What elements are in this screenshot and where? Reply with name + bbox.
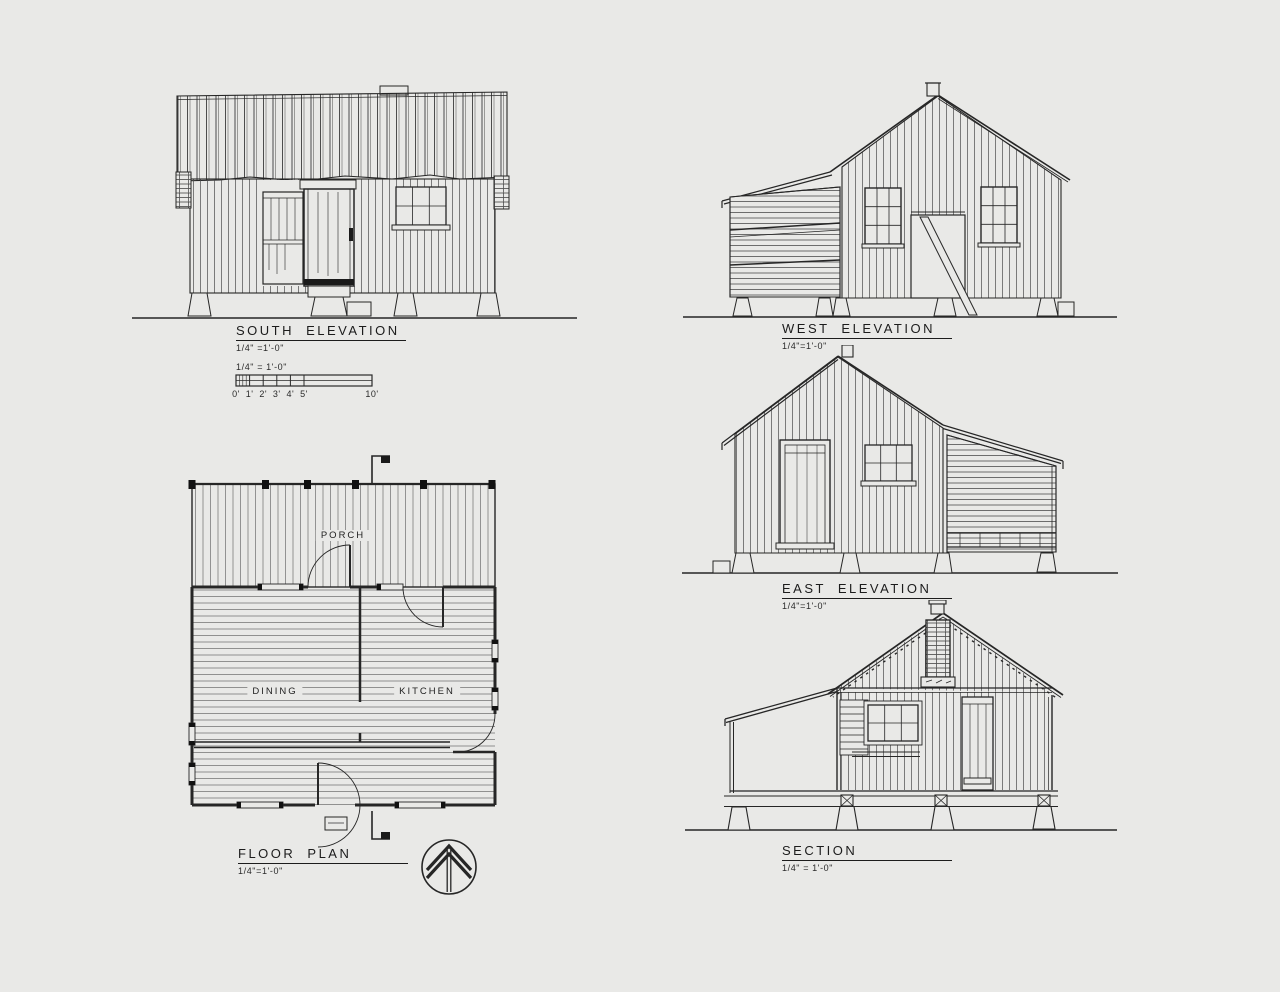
floor-plan-svg — [150, 440, 550, 880]
south-elevation-label: SOUTH ELEVATION 1/4" =1'-0" — [236, 322, 406, 353]
south-elevation-scale: 1/4" =1'-0" — [236, 343, 406, 353]
section-cut-flag-top — [372, 456, 390, 484]
west-elevation-drawing — [680, 80, 1120, 330]
porch-post — [304, 480, 311, 489]
window-nine-pane-left — [862, 188, 904, 248]
scale-tick-5: 5' — [300, 389, 308, 399]
porch-enclosure — [730, 187, 840, 297]
porch-section — [725, 688, 837, 796]
section-scale: 1/4" = 1'-0" — [782, 863, 952, 873]
scale-tick-1: 1' — [246, 389, 254, 399]
east-elevation-svg — [680, 345, 1120, 585]
floor-plan-label: FLOOR PLAN 1/4"=1'-0" — [238, 845, 408, 876]
foundation-piers — [733, 298, 1074, 316]
scale-bar-graphic — [228, 374, 388, 388]
floor-plan-scale: 1/4"=1'-0" — [238, 866, 408, 876]
room-label-porch: PORCH — [316, 530, 370, 541]
north-arrow — [418, 836, 480, 898]
window-six-pane — [392, 187, 450, 230]
scale-tick-4: 4' — [287, 389, 295, 399]
section-svg — [680, 600, 1120, 850]
scale-tick-2: 2' — [259, 389, 267, 399]
east-door — [776, 440, 834, 549]
chimney-stub-right — [494, 176, 509, 209]
porch-post — [262, 480, 269, 489]
section-drawing — [680, 600, 1120, 850]
drawing-sheet: SOUTH ELEVATION 1/4" =1'-0" 1/4" = 1'-0"… — [0, 0, 1280, 992]
door-step — [325, 817, 347, 830]
roof-fascia-band — [177, 92, 507, 181]
section-door — [962, 697, 993, 790]
porch-post — [420, 480, 427, 489]
east-elevation-title: EAST ELEVATION — [782, 581, 952, 599]
ridge-chimney — [842, 345, 853, 357]
scale-tick-10: 10' — [365, 389, 378, 399]
graphic-scale-bar: 1/4" = 1'-0" 0' 1' 2' 3' 4' 5' 10' — [228, 362, 398, 404]
entry-door — [262, 180, 356, 286]
west-elevation-svg — [680, 80, 1120, 330]
north-arrow-icon — [418, 836, 480, 898]
porch-post — [352, 480, 359, 489]
scale-tick-3: 3' — [273, 389, 281, 399]
floor-plan-drawing — [150, 440, 550, 880]
floor-framing — [724, 791, 1058, 807]
chimney-stub-left — [176, 172, 191, 208]
floor-plan-title: FLOOR PLAN — [238, 846, 408, 864]
room-label-dining: DINING — [247, 686, 302, 697]
porch-enclosure — [947, 435, 1056, 552]
south-elevation-drawing — [130, 80, 580, 330]
chimney-section — [921, 600, 955, 687]
window-nine-pane-right — [978, 187, 1020, 247]
porch-post — [489, 480, 496, 489]
porch-post — [189, 480, 196, 489]
room-label-kitchen: KITCHEN — [394, 686, 460, 697]
section-cut-flag-bottom — [372, 811, 390, 839]
foundation-piers — [728, 807, 1055, 831]
section-title: SECTION — [782, 843, 952, 861]
scale-tick-0: 0' — [232, 389, 240, 399]
south-elevation-svg — [130, 80, 580, 330]
section-window — [864, 701, 922, 745]
scale-bar-caption: 1/4" = 1'-0" — [236, 362, 287, 372]
ridge-chimney — [927, 83, 939, 96]
open-door-leaf — [263, 192, 303, 284]
window-six-pane — [861, 445, 916, 486]
west-elevation-title: WEST ELEVATION — [782, 321, 952, 339]
east-elevation-drawing — [680, 345, 1120, 585]
foundation-piers — [713, 553, 1056, 573]
section-label: SECTION 1/4" = 1'-0" — [782, 842, 952, 873]
south-elevation-title: SOUTH ELEVATION — [236, 323, 406, 341]
